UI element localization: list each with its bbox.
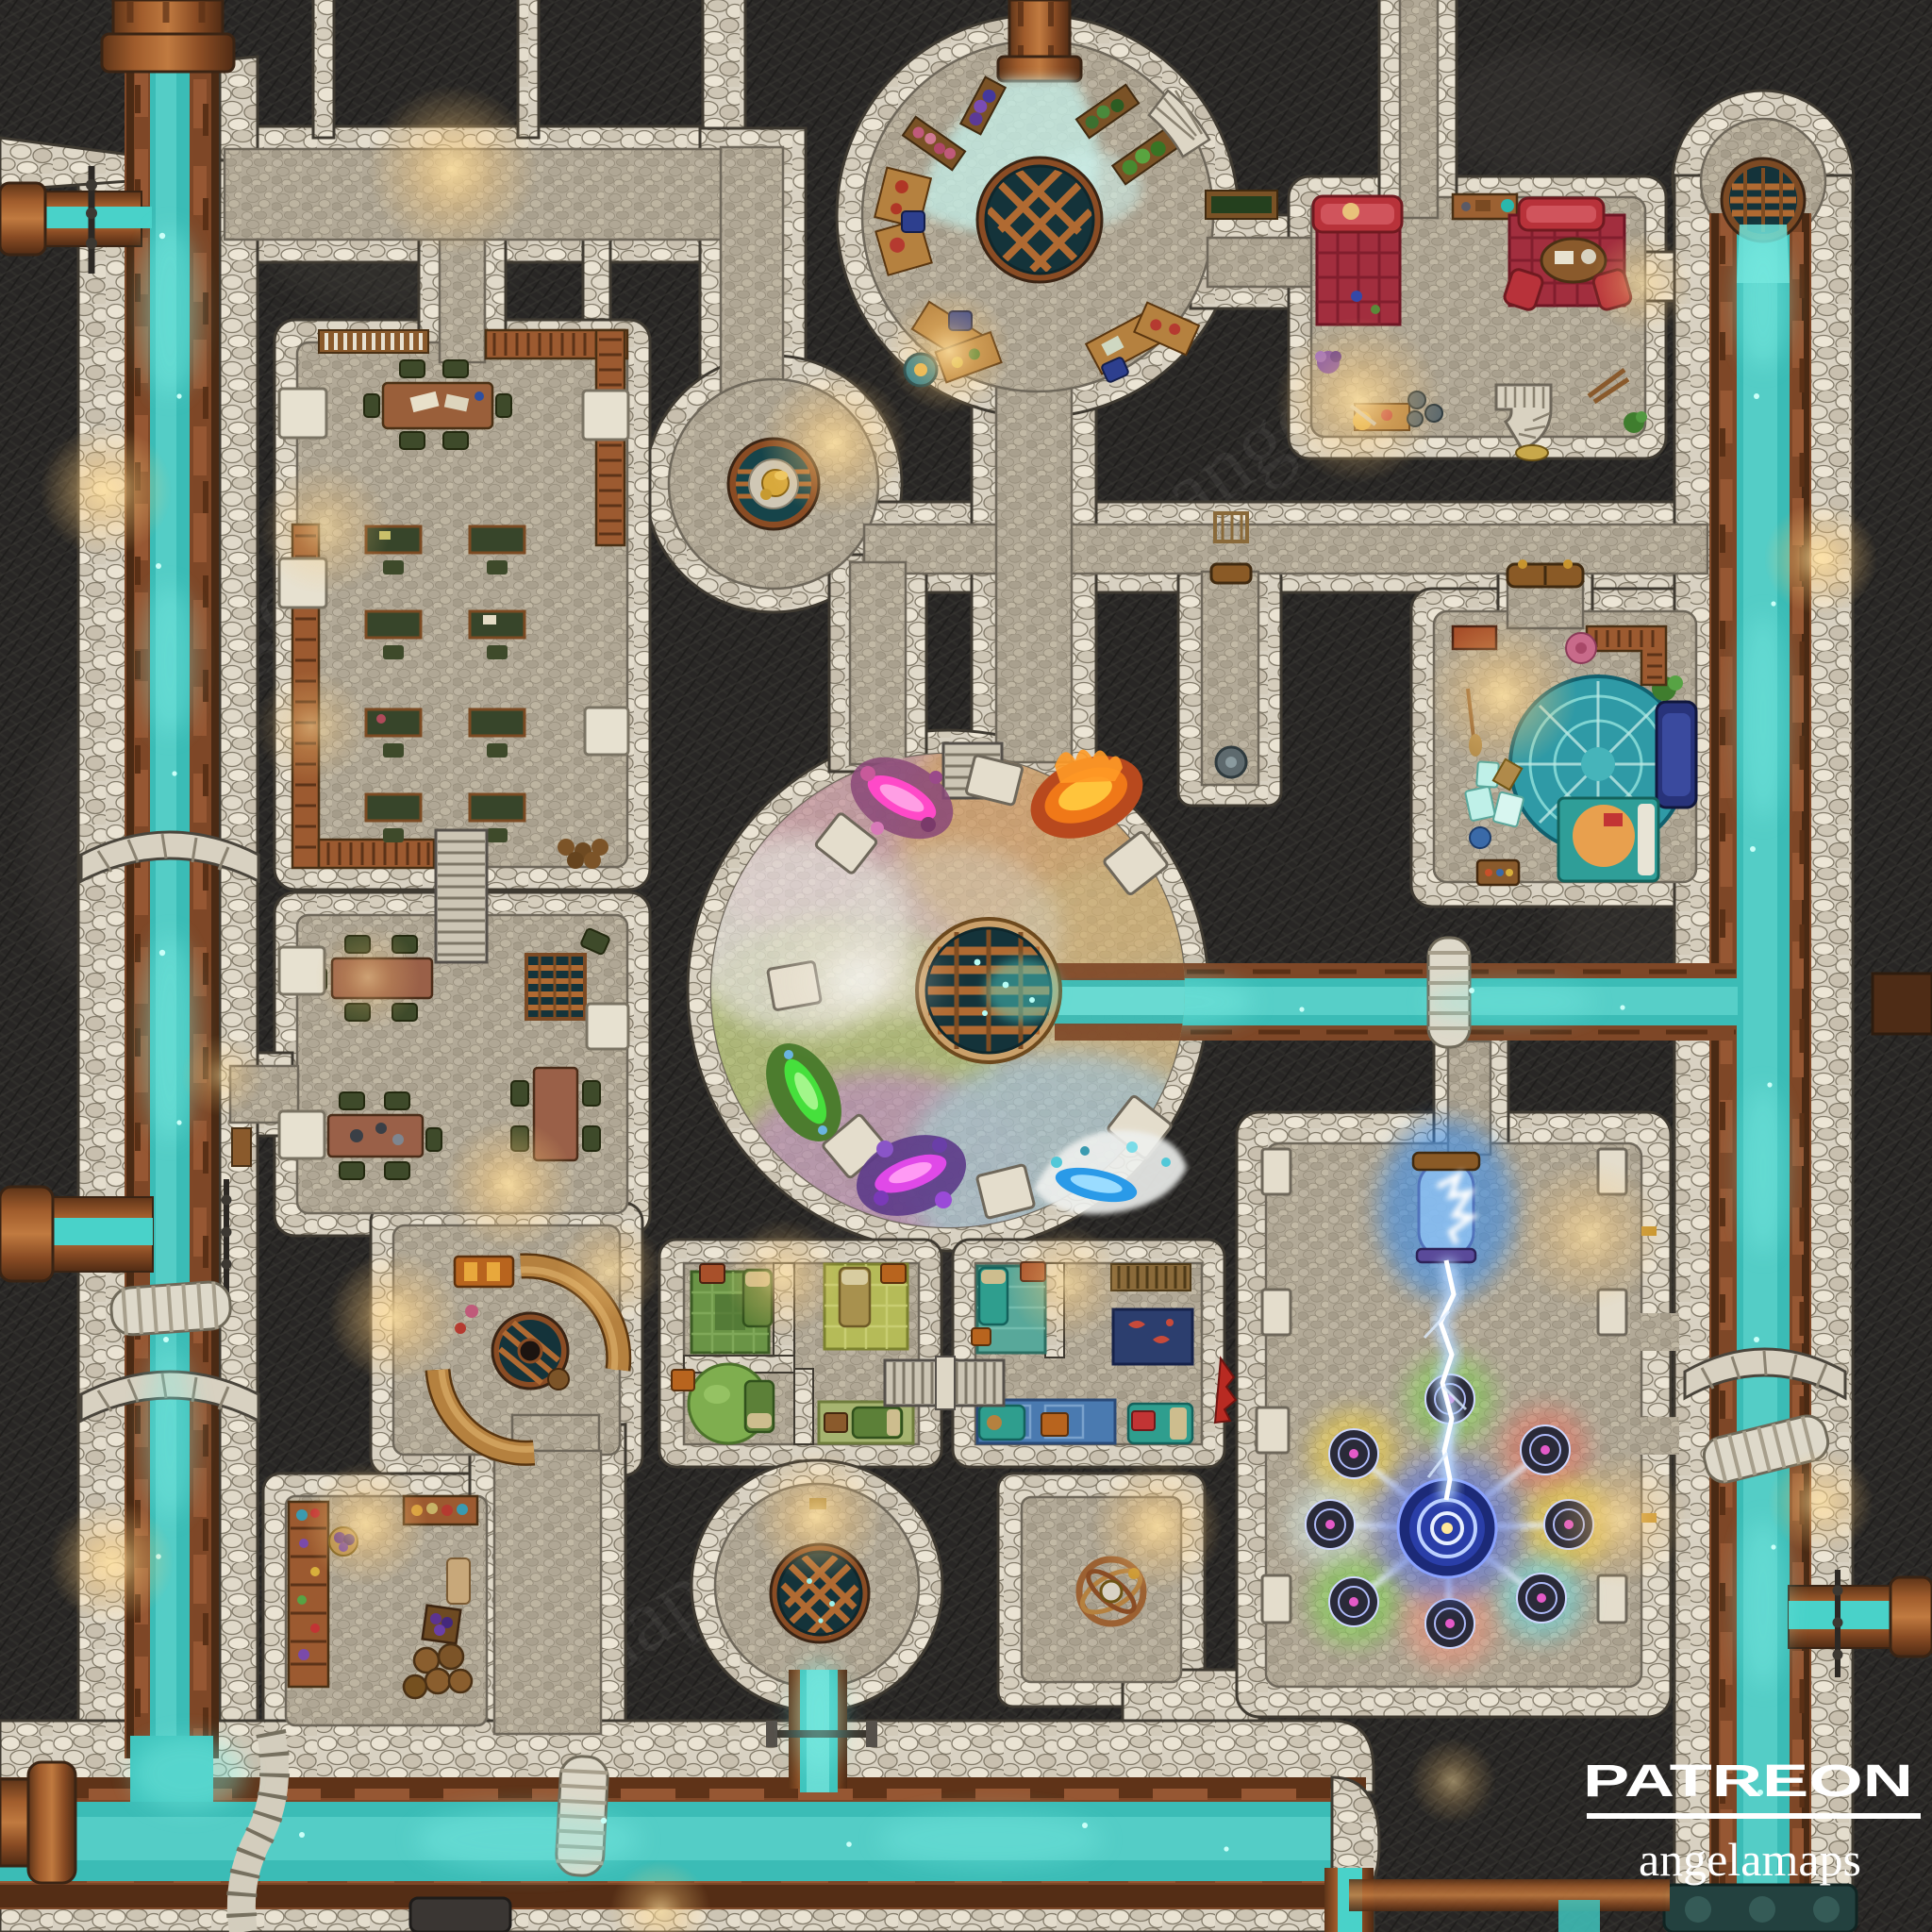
svg-text:PATREON: PATREON xyxy=(1583,1757,1913,1807)
svg-text:angelamaps: angelamaps xyxy=(1639,1833,1861,1886)
